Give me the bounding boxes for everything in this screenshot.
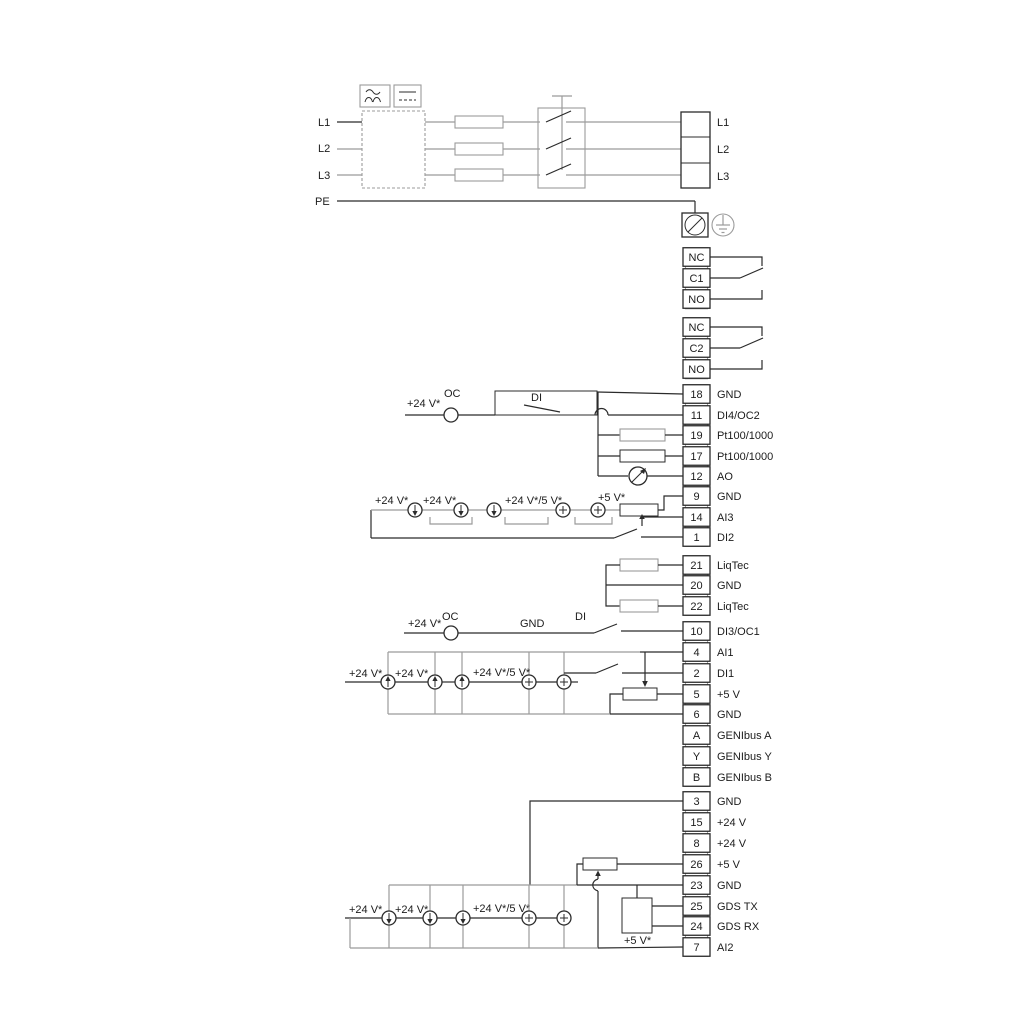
fuse-l1 (455, 116, 503, 128)
terminal-label: GND (717, 389, 742, 401)
terminal-number: 5 (693, 689, 699, 701)
relay1-no-label: NO (688, 294, 705, 306)
mains-l2-label: L2 (318, 143, 330, 155)
terminal-row: BGENIbus B (683, 768, 772, 787)
terminal-label: DI1 (717, 668, 734, 680)
terminal-row: 10DI3/OC1 (683, 622, 760, 641)
potentiometer (583, 858, 617, 870)
terminal-number: 7 (693, 942, 699, 954)
d-5v-label: +5 V* (624, 935, 652, 947)
diagram-svg: L1 L2 L3 PE (0, 0, 1024, 1024)
terminal-number: 15 (690, 817, 702, 829)
terminal-row: 17Pt100/1000 (683, 447, 773, 466)
terminal-row: 7AI2 (683, 938, 734, 957)
filter-box (362, 111, 425, 188)
terminal-number: 4 (693, 647, 699, 659)
relay2-c2-label: C2 (689, 343, 703, 355)
terminal-row: 14AI3 (683, 508, 734, 527)
terminal-row: 26+5 V (683, 855, 741, 874)
terminal-row: YGENIbus Y (683, 747, 772, 766)
terminal-row: 21LiqTec (683, 556, 749, 575)
mains-section: L1 L2 L3 PE (315, 85, 734, 237)
terminal-label: +5 V (717, 859, 741, 871)
terminal-number: A (693, 730, 701, 742)
out-l2-label: L2 (717, 144, 729, 156)
current-source-icon (423, 911, 437, 925)
relay-contact (710, 257, 763, 299)
switch (594, 624, 617, 633)
terminal-label: AI2 (717, 942, 734, 954)
terminal-label: GND (717, 880, 742, 892)
terminal-label: GENIbus B (717, 772, 772, 784)
terminal-number: 26 (690, 859, 702, 871)
earth-icon (712, 214, 734, 236)
contactor (538, 96, 585, 188)
terminal-number: 12 (690, 471, 702, 483)
resistor-pt100 (620, 450, 665, 462)
section-d: +5 V* +24 V* +24 V* +24 V*/5 V* (345, 801, 683, 948)
terminal-number: 8 (693, 838, 699, 850)
resistor-pt100 (620, 429, 665, 441)
liqtec-section (606, 559, 683, 612)
current-source-icon (454, 503, 468, 517)
a-oc-label: OC (444, 388, 461, 400)
voltage-source-icon (522, 675, 536, 689)
terminal-label: GENIbus Y (717, 751, 772, 763)
terminal-number: 3 (693, 796, 699, 808)
terminal-row: 6GND (683, 705, 742, 724)
potentiometer (620, 504, 658, 526)
c-src-mix-label: +24 V*/5 V* (473, 667, 531, 679)
d-src-24v-label: +24 V* (349, 904, 383, 916)
terminal-label: GND (717, 796, 742, 808)
terminal-number: 18 (690, 389, 702, 401)
relay-2-block: NC C2 NO (683, 318, 763, 379)
option-brackets (430, 517, 612, 524)
out-l3-label: L3 (717, 171, 729, 183)
relay-1-block: NC C1 NO (683, 248, 763, 309)
terminal-row: 1DI2 (683, 528, 734, 547)
terminal-row: 19Pt100/1000 (683, 426, 773, 445)
terminal-label: GND (717, 709, 742, 721)
terminal-label: DI4/OC2 (717, 410, 760, 422)
current-source-icon (408, 503, 422, 517)
terminal-row: 12AO (683, 467, 733, 486)
terminal-label: LiqTec (717, 601, 749, 613)
oc-symbol-icon (444, 626, 458, 640)
terminal-strip-liqtec: 21LiqTec 20GND 22LiqTec (683, 556, 749, 616)
terminal-row: 8+24 V (683, 834, 747, 853)
c-src-24v-label: +24 V* (349, 668, 383, 680)
b-mix-label: +24 V*/5 V* (505, 495, 563, 507)
terminal-number: 21 (690, 560, 702, 572)
terminal-row: 2DI1 (683, 664, 734, 683)
terminal-row: 24GDS RX (683, 917, 760, 936)
gds-sensor (622, 885, 683, 933)
terminal-label: +5 V (717, 689, 741, 701)
relay2-nc-label: NC (689, 322, 705, 334)
terminal-number: Y (693, 751, 701, 763)
switch (524, 405, 560, 412)
terminal-strip-2: 10DI3/OC1 4AI1 2DI1 5+5 V 6GND AGENIbus … (683, 622, 772, 787)
liqtec-sensor (620, 559, 658, 571)
terminal-number: 9 (693, 491, 699, 503)
mains-pe-label: PE (315, 196, 330, 208)
terminal-number: 22 (690, 601, 702, 613)
liqtec-sensor (620, 600, 658, 612)
terminal-number: 17 (690, 451, 702, 463)
terminal-number: 6 (693, 709, 699, 721)
current-source-icon (382, 911, 396, 925)
terminal-label: AI1 (717, 647, 734, 659)
terminal-number: 20 (690, 580, 702, 592)
terminal-row: 4AI1 (683, 643, 734, 662)
terminal-label: +24 V (717, 838, 747, 850)
terminal-label: DI3/OC1 (717, 626, 760, 638)
terminal-row: 23GND (683, 876, 742, 895)
wires (425, 122, 455, 175)
terminal-row: 22LiqTec (683, 597, 749, 616)
mains-l3-label: L3 (318, 170, 330, 182)
terminal-number: 25 (690, 901, 702, 913)
terminal-number: 23 (690, 880, 702, 892)
c-src-24v-label: +24 V* (395, 668, 429, 680)
terminal-label: LiqTec (717, 560, 749, 572)
c-di-label: DI (575, 611, 586, 623)
terminal-row: 9GND (683, 487, 742, 506)
pe-wire (337, 201, 695, 213)
terminal-row: AGENIbus A (683, 726, 772, 745)
mains-terminal-block (681, 112, 710, 188)
terminal-label: +24 V (717, 817, 747, 829)
b-24v-label: +24 V* (375, 495, 409, 507)
relay-contact (710, 327, 763, 369)
terminal-number: 2 (693, 668, 699, 680)
out-l1-label: L1 (717, 117, 729, 129)
terminal-label: DI2 (717, 532, 734, 544)
relay2-no-label: NO (688, 364, 705, 376)
terminal-number: 14 (690, 512, 702, 524)
terminal-label: Pt100/1000 (717, 430, 773, 442)
terminal-row: 3GND (683, 792, 742, 811)
current-source-icon (487, 503, 501, 517)
fuse-l3 (455, 169, 503, 181)
dc-symbol-icon (394, 85, 421, 107)
b-24v-label: +24 V* (423, 495, 457, 507)
section-c: +24 V* OC GND DI +24 V* +24 V* +24 V*/5 … (345, 611, 683, 714)
terminal-number: 19 (690, 430, 702, 442)
voltage-source-icon (522, 911, 536, 925)
switch (596, 664, 618, 673)
terminal-label: AI3 (717, 512, 734, 524)
c-oc-label: OC (442, 611, 459, 623)
voltage-source-icon (591, 503, 605, 517)
terminal-strip-3: 3GND 15+24 V 8+24 V 26+5 V 23GND 25GDS T… (683, 792, 760, 957)
wires (566, 122, 681, 175)
terminal-row: 11DI4/OC2 (683, 406, 760, 425)
relay1-nc-label: NC (689, 252, 705, 264)
potentiometer (623, 688, 657, 700)
voltage-source-icon (556, 503, 570, 517)
voltage-source-icon (557, 911, 571, 925)
terminal-row: 15+24 V (683, 813, 747, 832)
meter-icon (629, 467, 647, 485)
terminal-label: GENIbus A (717, 730, 772, 742)
terminal-row: 20GND (683, 576, 742, 595)
terminal-strip-1: 18GND 11DI4/OC2 19Pt100/1000 17Pt100/100… (683, 385, 773, 547)
relay1-c1-label: C1 (689, 273, 703, 285)
terminal-label: Pt100/1000 (717, 451, 773, 463)
terminal-number: 11 (691, 410, 702, 422)
oc-symbol-icon (444, 408, 458, 422)
terminal-label: AO (717, 471, 733, 483)
pe-terminal-icon (682, 213, 708, 237)
terminal-label: GND (717, 491, 742, 503)
terminal-label: GDS TX (717, 901, 758, 913)
d-src-mix-label: +24 V*/5 V* (473, 903, 531, 915)
option-stubs (388, 652, 564, 714)
c-gnd-label: GND (520, 618, 545, 630)
wiring-diagram: L1 L2 L3 PE (0, 0, 1024, 1024)
a-di-label: DI (531, 392, 542, 404)
a-24v-label: +24 V* (407, 398, 441, 410)
voltage-source-icon (557, 675, 571, 689)
terminal-number: 1 (693, 532, 699, 544)
terminal-number: 10 (690, 626, 702, 638)
mains-l1-label: L1 (318, 117, 330, 129)
terminal-row: 5+5 V (683, 685, 741, 704)
terminal-number: B (693, 772, 700, 784)
section-a: +24 V* OC DI (405, 388, 683, 485)
current-source-icon (456, 911, 470, 925)
terminal-row: 18GND (683, 385, 742, 404)
terminal-number: 24 (690, 921, 702, 933)
terminal-label: GND (717, 580, 742, 592)
terminal-label: GDS RX (717, 921, 760, 933)
current-source-icon (381, 675, 395, 689)
ac-symbol-icon (360, 85, 390, 107)
switch (614, 529, 637, 538)
fuse-l2 (455, 143, 503, 155)
terminal-row: 25GDS TX (683, 897, 758, 916)
section-b: +24 V* +24 V* +24 V*/5 V* +5 V* (371, 492, 683, 538)
current-source-icon (455, 675, 469, 689)
b-5v-label: +5 V* (598, 492, 626, 504)
di-box: DI (495, 391, 597, 415)
current-source-icon (428, 675, 442, 689)
wires (503, 122, 540, 175)
c-24v-label: +24 V* (408, 618, 442, 630)
